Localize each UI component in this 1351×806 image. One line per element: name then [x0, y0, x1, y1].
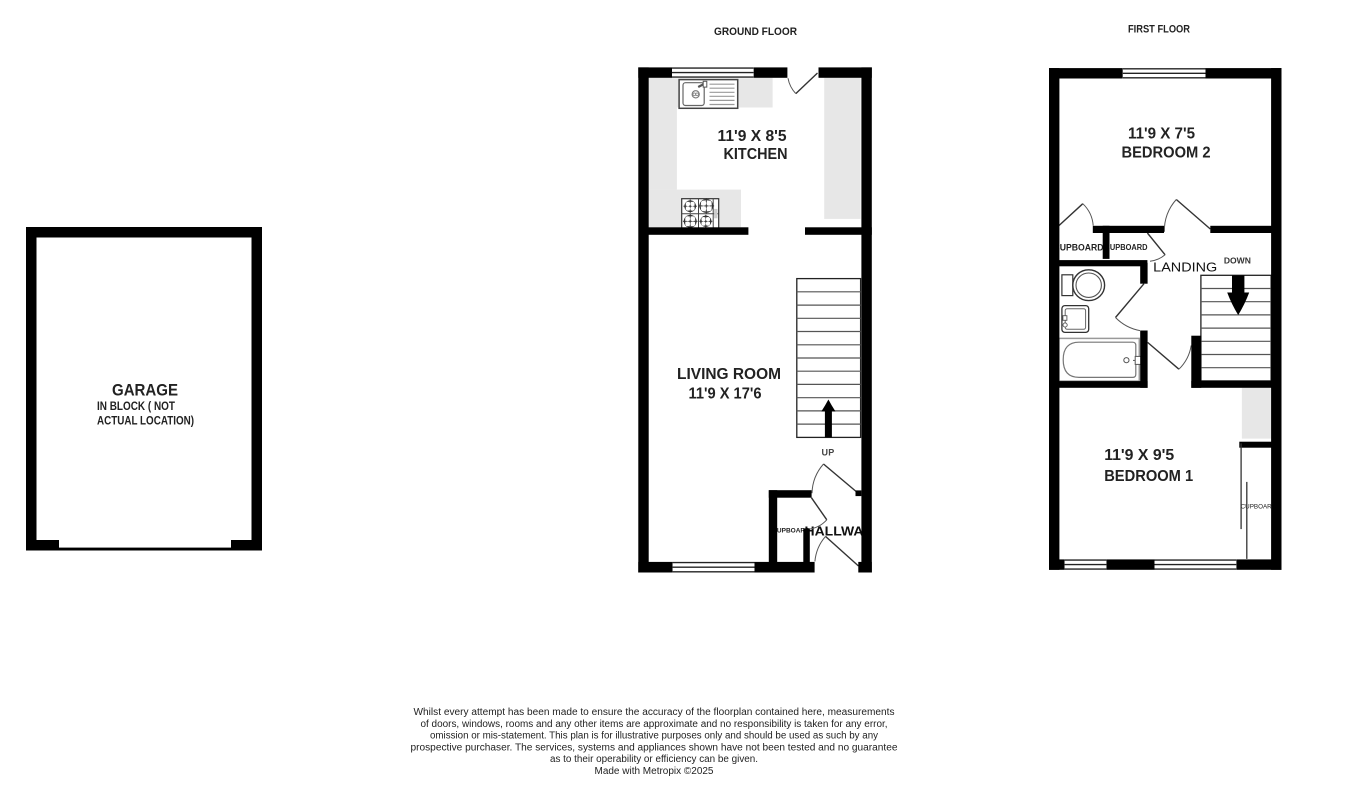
svg-text:11'9 X 9'5: 11'9 X 9'5 [1104, 447, 1174, 464]
svg-text:Made with Metropix ©2025: Made with Metropix ©2025 [595, 766, 715, 777]
svg-text:CUPBOARD: CUPBOARD [1105, 243, 1148, 252]
svg-text:CUPBOARD: CUPBOARD [1054, 242, 1104, 252]
svg-text:omission or mis-statement. Thi: omission or mis-statement. This plan is … [430, 731, 878, 742]
svg-text:prospective purchaser. The ser: prospective purchaser. The services, sys… [411, 742, 899, 753]
svg-text:Whilst every attempt has been: Whilst every attempt has been made to en… [414, 707, 895, 718]
svg-text:11'9 X 7'5: 11'9 X 7'5 [1128, 125, 1195, 142]
svg-text:BEDROOM 2: BEDROOM 2 [1122, 145, 1211, 162]
svg-text:GARAGE: GARAGE [112, 382, 178, 400]
svg-text:11'9 X 8'5: 11'9 X 8'5 [718, 128, 787, 145]
svg-text:DOWN: DOWN [1224, 256, 1251, 265]
svg-text:LIVING ROOM: LIVING ROOM [677, 366, 781, 383]
svg-text:of doors, windows, rooms and a: of doors, windows, rooms and any other i… [421, 719, 888, 730]
svg-text:11'9 X 17'6: 11'9 X 17'6 [689, 386, 762, 403]
svg-text:UP: UP [821, 448, 834, 458]
svg-text:GROUND FLOOR: GROUND FLOOR [714, 26, 797, 38]
svg-text:LANDING: LANDING [1153, 259, 1217, 274]
svg-text:IN BLOCK ( NOT: IN BLOCK ( NOT [97, 399, 176, 413]
svg-text:as to their operability or eff: as to their operability or efficiency ca… [550, 754, 758, 765]
svg-text:ACTUAL LOCATION): ACTUAL LOCATION) [97, 414, 194, 428]
svg-text:KITCHEN: KITCHEN [724, 146, 788, 163]
svg-text:FIRST FLOOR: FIRST FLOOR [1128, 24, 1190, 36]
svg-text:BEDROOM 1: BEDROOM 1 [1104, 468, 1193, 485]
